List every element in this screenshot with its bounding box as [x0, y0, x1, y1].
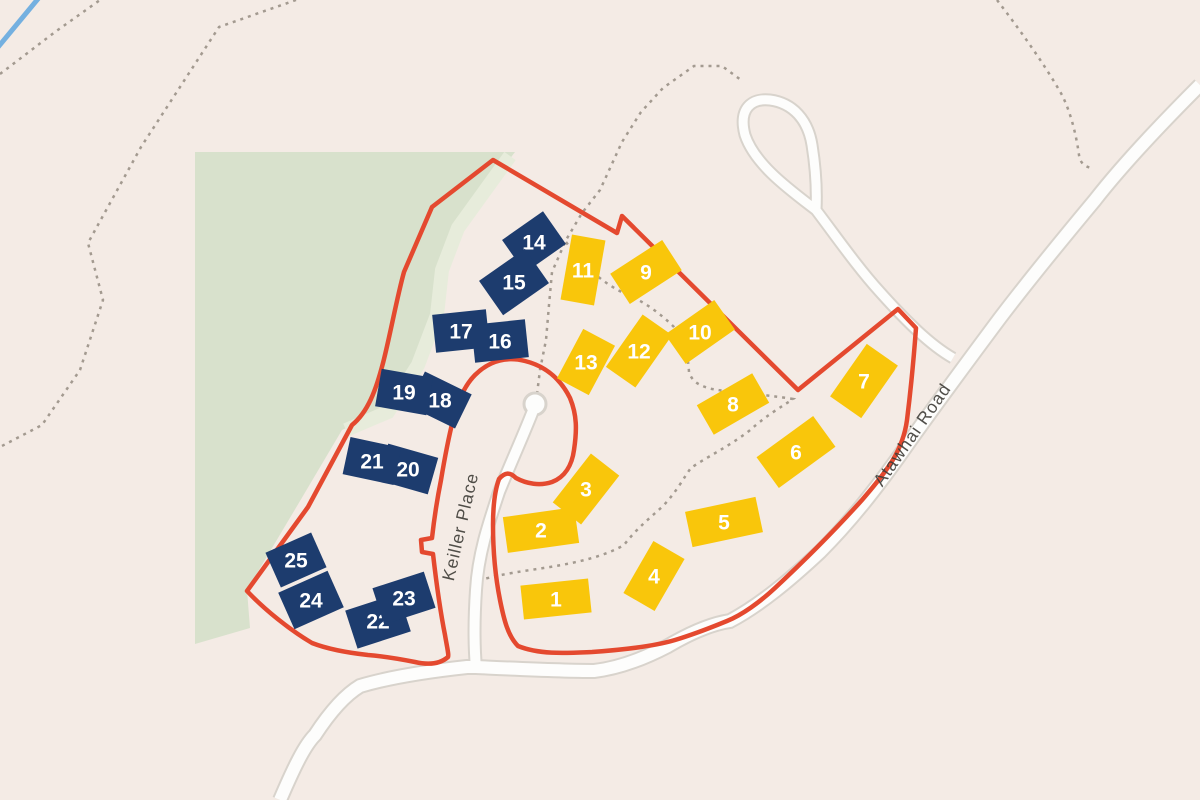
map-svg[interactable]: 1234567891011121314151617181920212223242… [0, 0, 1200, 800]
building-unit-17[interactable]: 17 [432, 309, 490, 352]
building-unit-1[interactable]: 1 [520, 579, 591, 620]
map-background [0, 0, 1200, 800]
navy-building-footprint[interactable] [432, 309, 490, 352]
map-canvas[interactable]: 1234567891011121314151617181920212223242… [0, 0, 1200, 800]
yellow-building-footprint[interactable] [520, 579, 591, 620]
